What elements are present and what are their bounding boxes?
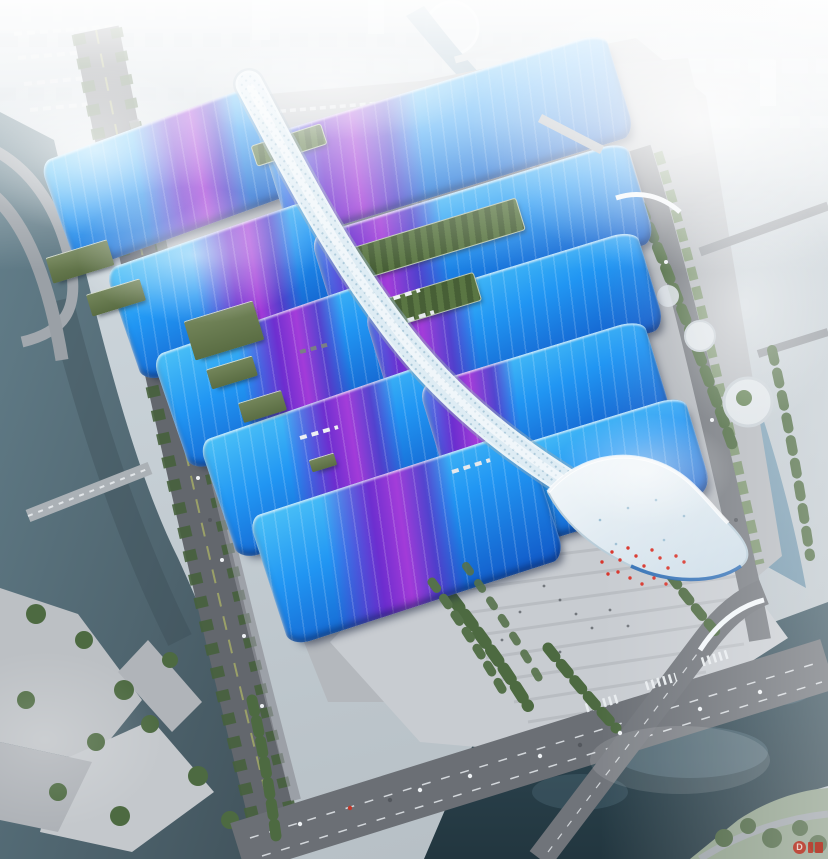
watermark: D — [793, 841, 823, 854]
palm-rows — [432, 566, 540, 696]
overlay-layer — [0, 0, 828, 859]
watermark-glyph-1 — [808, 842, 813, 853]
aerial-rendering-canvas: D — [0, 0, 828, 859]
haze-overlay — [0, 0, 828, 859]
watermark-glyph-2 — [815, 842, 823, 853]
watermark-logo-icon: D — [793, 841, 806, 854]
